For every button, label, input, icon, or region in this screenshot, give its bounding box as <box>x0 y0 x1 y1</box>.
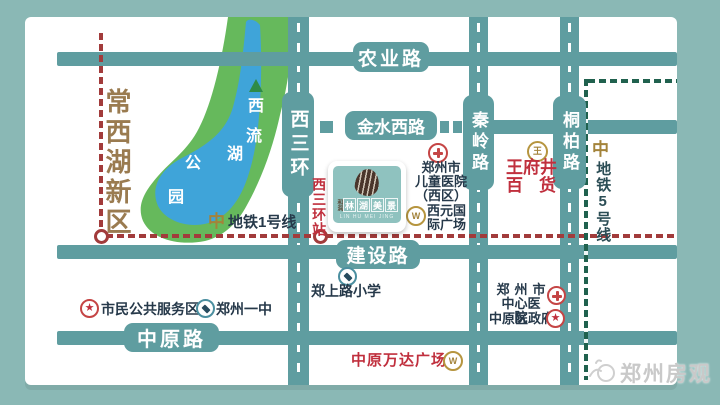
poi-district-gov: 中原区政府 <box>489 312 554 326</box>
xiyuan-plaza-icon: W <box>406 206 426 226</box>
poi-line: 百货 <box>506 177 584 195</box>
watermark-logo <box>585 355 621 385</box>
road-label-jinshui: 金水西路 <box>345 111 437 140</box>
park-label-char: 公 <box>185 156 201 172</box>
location-map: 西 流 湖 公 园 常西湖新区 农业路 金水西路 建设路 中原路 西三环 秦岭路… <box>0 0 720 405</box>
poi-line: 王府井 <box>506 159 568 177</box>
poi-line: 际广场 <box>427 218 466 232</box>
brand-char: 美 <box>371 198 384 212</box>
road-xisanhuan <box>288 17 309 385</box>
poi-line: （西区） <box>404 189 478 203</box>
project-logo-card: 和润 林 湖 美 景 LIN HU MEI JING <box>328 161 406 232</box>
civic-star-icon: ★ <box>80 299 99 318</box>
brand-char: 林 <box>343 198 356 212</box>
poi-line: 西元国 <box>427 204 466 218</box>
poi-children-hospital: 郑州市 儿童医院 （西区） <box>404 161 478 203</box>
metro1-label: 地铁1号线 <box>228 215 296 231</box>
poi-wangfujing: 王府井 百货 <box>506 159 568 196</box>
lake-label-char: 西 <box>248 99 264 115</box>
project-logo-square: 和润 林 湖 美 景 LIN HU MEI JING <box>333 166 401 223</box>
poi-no1-middle-school: 郑州一中 <box>216 302 272 317</box>
road-tongbai <box>560 17 579 385</box>
lake-label-char: 流 <box>246 129 262 145</box>
road-label-xisanhuan: 西三环 <box>282 92 314 197</box>
star-glyph: ★ <box>551 313 561 324</box>
wanda-plaza-icon: W <box>443 351 463 371</box>
poi-civic-center: 市民公共服务区 <box>101 302 199 317</box>
project-brand-name: 和润 林 湖 美 景 <box>333 198 401 212</box>
poi-line: 郑州市 <box>496 283 551 297</box>
gold-wang-glyph: 王 <box>533 147 542 156</box>
brand-prefix: 和润 <box>336 199 342 211</box>
poi-wanda-plaza: 中原万达广场 <box>351 353 447 369</box>
lake-label-char: 湖 <box>227 147 243 163</box>
road-jinshui-dash <box>440 121 449 133</box>
metro1-line-horizontal <box>106 234 677 238</box>
metro5-line-horizontal <box>588 79 677 83</box>
road-label-nongye: 农业路 <box>353 42 429 72</box>
road-label-jianshe: 建设路 <box>336 240 420 269</box>
hospital-cross-icon <box>547 286 566 305</box>
metro-logo-icon: 中 <box>592 141 609 158</box>
park-label-char: 园 <box>168 190 184 206</box>
watermark-text: 郑州房观 <box>620 358 712 388</box>
gov-star-icon: ★ <box>546 309 565 328</box>
road-jinshui-dash <box>453 121 462 133</box>
road-label-zhongyuan: 中原路 <box>124 323 219 352</box>
leaf-logo-icon <box>354 168 381 197</box>
brand-char: 景 <box>385 198 398 212</box>
school-cap-icon <box>196 299 215 318</box>
brand-char: 湖 <box>357 198 370 212</box>
metro5-label: 地铁5号线 <box>594 161 610 243</box>
gold-w-glyph: W <box>449 357 458 366</box>
poi-line: 郑州市 <box>404 161 478 175</box>
poi-zhengshang-school: 郑上路小学 <box>311 284 381 299</box>
poi-xiyuan-plaza: 西元国 际广场 <box>427 204 466 232</box>
gold-w-glyph: W <box>412 212 421 221</box>
brand-latin: LIN HU MEI JING <box>333 214 401 220</box>
poi-line: 儿童医院 <box>404 175 478 189</box>
xisanhuan-station-label: 西三环站 <box>311 177 326 237</box>
star-glyph: ★ <box>85 303 95 314</box>
road-jinshui-dash <box>320 121 333 133</box>
district-label: 常西湖新区 <box>104 88 130 238</box>
metro-logo-icon: 中 <box>208 213 225 230</box>
